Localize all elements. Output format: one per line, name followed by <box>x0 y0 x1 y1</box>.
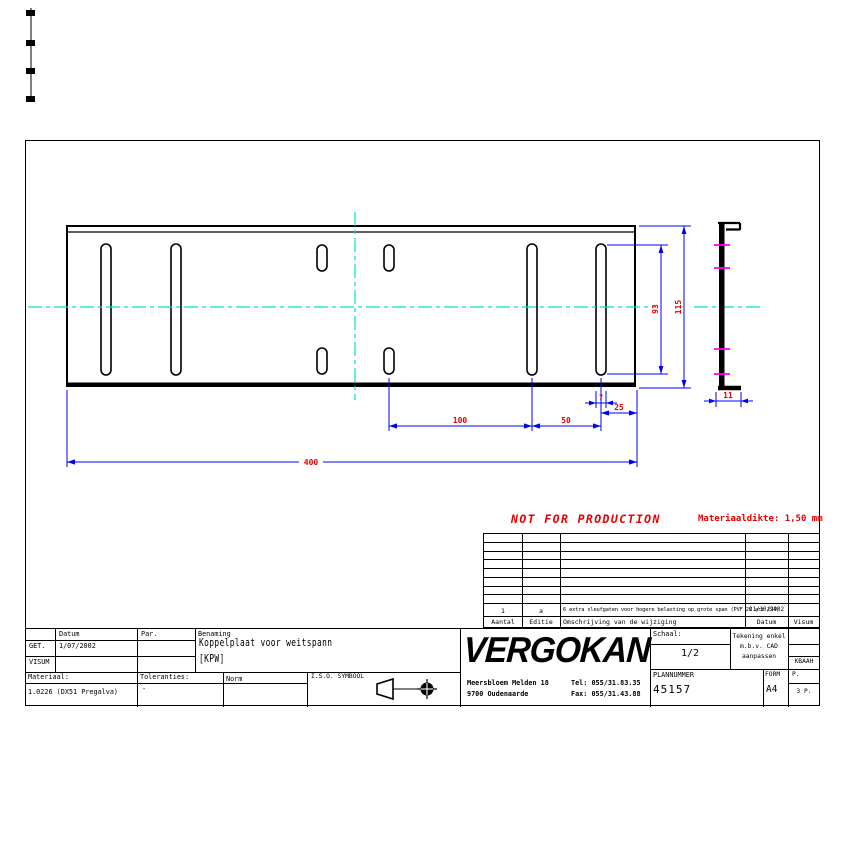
revision-col-line <box>788 534 789 629</box>
revision-datum-value: 21/10/2002 <box>745 608 788 614</box>
titleblock-line <box>650 669 820 670</box>
registration-marks <box>26 8 35 102</box>
revision-col-line <box>522 534 523 629</box>
pages-value: 3 P. <box>788 689 820 695</box>
drawing-sheet: 400 100 50 25 7 93 115 11 NOT FOR PRODUC… <box>0 0 842 842</box>
norm-label: Norm <box>226 676 242 683</box>
revision-row-line <box>484 616 819 617</box>
title-block: Datum Par. Benaming GET. 1/07/2002 VISUM… <box>25 628 820 706</box>
company-address-line1: Meersbloem Melden 18 <box>467 680 549 687</box>
schaal-value: 1/2 <box>650 649 730 659</box>
revision-header-datum: Datum <box>745 619 788 626</box>
company-address-line2: 9700 Oudenaarde <box>467 691 528 698</box>
side-view-profile <box>714 223 741 388</box>
dim-flange-11: 11 <box>723 391 733 400</box>
revision-aantal-value: 1 <box>484 608 522 615</box>
dim-slot-pitch-50: 50 <box>561 416 571 425</box>
dim-slot-span-93: 93 <box>651 304 660 314</box>
company-fax: Fax: 055/31.43.88 <box>571 691 641 698</box>
toleranties-value: - <box>142 686 146 693</box>
plannummer-label: PLANNUMMER <box>653 672 694 679</box>
revision-header-omschrijving: Omschrijving van de wijziging <box>563 619 677 626</box>
titleblock-line <box>460 629 461 707</box>
titleblock-line <box>195 629 196 672</box>
cad-note-line2: m.b.v. CAD <box>731 644 787 650</box>
dim-height-115: 115 <box>674 300 683 315</box>
dim-slot-width-7: 7 <box>599 394 603 402</box>
schaal-label: Schaal: <box>653 631 682 638</box>
revision-col-line <box>560 534 561 629</box>
get-date-value: 1/07/2002 <box>59 643 96 650</box>
plannummer-value: 45157 <box>653 684 691 695</box>
titleblock-line <box>25 656 195 657</box>
titleblock-line <box>788 629 789 707</box>
datum-column-label: Datum <box>59 631 79 638</box>
cad-note-line3: aanpassen <box>731 654 787 660</box>
titleblock-line <box>25 640 195 641</box>
iso-symbool-label: I.S.O. SYMBOOL <box>311 674 364 680</box>
cad-note-line1: Tekening enkel <box>731 634 787 640</box>
revision-empty-row <box>484 595 819 604</box>
company-tel: Tel: 055/31.83.35 <box>571 680 641 687</box>
revision-header-aantal: Aantal <box>484 619 522 626</box>
titleblock-line <box>788 644 820 645</box>
get-label: GET. <box>29 643 45 650</box>
material-thickness-note: Materiaaldikte: 1,50 mm <box>698 514 823 524</box>
revision-empty-row <box>484 543 819 552</box>
titleblock-line <box>650 644 730 645</box>
titleblock-line <box>307 672 308 707</box>
part-title: Koppelplaat voor weitspann <box>199 637 332 648</box>
revision-empty-row <box>484 552 819 561</box>
par-column-label: Par. <box>141 631 157 638</box>
revision-header-visum: Visum <box>788 619 819 626</box>
toleranties-label: Toleranties: <box>140 674 189 681</box>
revision-empty-row <box>484 534 819 543</box>
titleblock-line <box>223 672 224 707</box>
form-label: FORM <box>765 672 780 678</box>
iso-projection-icon <box>373 676 453 702</box>
form-value: A4 <box>766 685 777 695</box>
revision-empty-row <box>484 560 819 569</box>
company-logo: VERGOKAN <box>462 630 651 670</box>
dim-edge-25: 25 <box>614 403 624 412</box>
technical-drawing: 400 100 50 25 7 93 115 11 <box>0 0 842 842</box>
titleblock-line <box>788 656 820 657</box>
pages-label: P. <box>792 672 800 678</box>
titleblock-line <box>55 629 56 672</box>
materiaal-value: 1.0226 (DX51 Pregalva) <box>28 689 118 696</box>
revision-empty-row <box>484 587 819 596</box>
titleblock-line <box>25 672 460 673</box>
titleblock-line <box>763 669 764 707</box>
not-for-production-note: NOT FOR PRODUCTION <box>511 512 661 526</box>
revision-empty-row <box>484 578 819 587</box>
dim-slot-pitch-100: 100 <box>453 416 468 425</box>
dim-overall-length: 400 <box>304 458 319 467</box>
revision-col-line <box>745 534 746 629</box>
part-code: [KPW] <box>199 653 225 664</box>
titleblock-line <box>25 683 307 684</box>
front-view-plate <box>67 226 635 386</box>
visum-label: VISUM <box>29 659 49 666</box>
revision-empty-row <box>484 569 819 578</box>
titleblock-line <box>788 683 820 684</box>
visum-code-value: KBAAH <box>788 659 820 665</box>
materiaal-label: Materiaal: <box>28 674 69 681</box>
revision-table: 1 a 6 extra sleufgaten voor hogere belas… <box>483 533 820 628</box>
revision-editie-value: a <box>522 608 560 615</box>
revision-header-editie: Editie <box>522 619 560 626</box>
